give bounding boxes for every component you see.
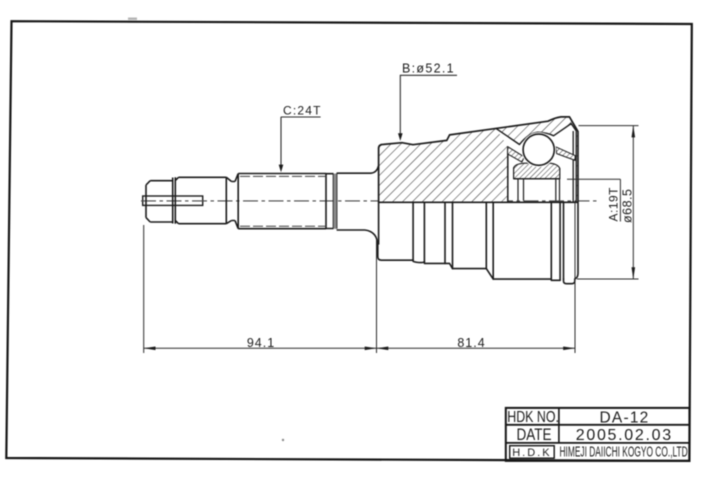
svg-text:HDK NO.: HDK NO. bbox=[507, 407, 559, 425]
svg-text:94.1: 94.1 bbox=[247, 336, 275, 350]
svg-text:B:ø52.1: B:ø52.1 bbox=[402, 62, 455, 76]
svg-text:ø68.5: ø68.5 bbox=[621, 189, 635, 223]
svg-text:DA-12: DA-12 bbox=[600, 409, 650, 426]
svg-text:C:24T: C:24T bbox=[283, 104, 322, 118]
svg-text:81.4: 81.4 bbox=[457, 336, 485, 350]
svg-text:A:19T: A:19T bbox=[607, 187, 621, 222]
svg-text:H.D.K: H.D.K bbox=[512, 447, 551, 459]
svg-text:HIMEJI DAIICHI KOGYO CO.,LTD: HIMEJI DAIICHI KOGYO CO.,LTD bbox=[560, 443, 688, 460]
svg-text:2005.02.03: 2005.02.03 bbox=[576, 427, 673, 444]
svg-text:DATE: DATE bbox=[516, 426, 551, 445]
